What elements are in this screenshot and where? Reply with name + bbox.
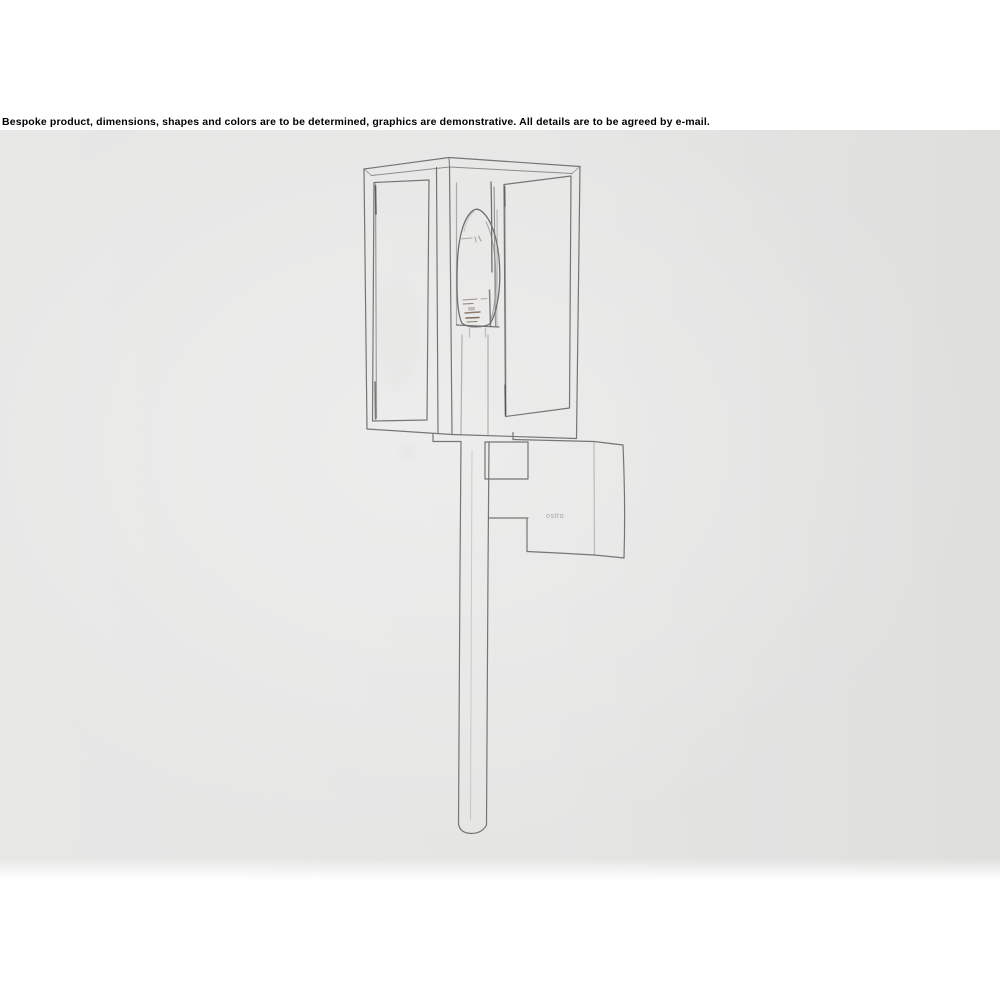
sketch-paper: ostro — [0, 130, 1000, 880]
paper-texture — [0, 130, 1000, 880]
pencil-smudge — [401, 448, 415, 456]
product-image-page: Bespoke product, dimensions, shapes and … — [0, 0, 1000, 1000]
bracket-brand-label: ostro — [546, 513, 564, 520]
disclaimer-text: Bespoke product, dimensions, shapes and … — [2, 116, 998, 129]
